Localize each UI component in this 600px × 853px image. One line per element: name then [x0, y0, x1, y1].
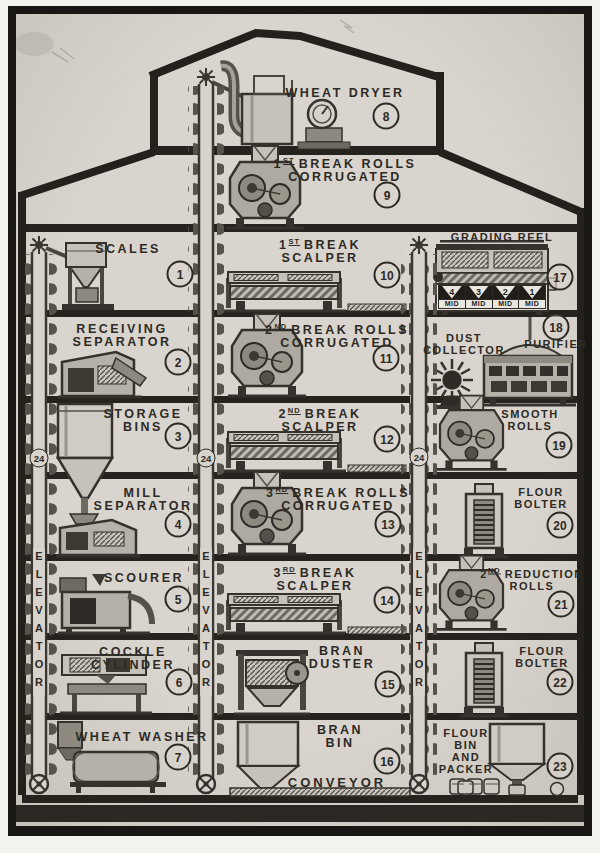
scales-badge: 1 — [167, 261, 194, 288]
scales-label: SCALES — [95, 243, 161, 256]
first-break-rolls-badge: 9 — [374, 182, 401, 209]
third-break-scalper-label: 3RDBREAK SCALPER — [273, 563, 356, 593]
label-overlay: SCALES 1 RECEIVINGSEPARATOR 2 STORAGEBIN… — [0, 0, 600, 853]
wheat-dryer-label: WHEAT DRYER — [285, 87, 404, 100]
elevator-label-left: ELEVATOR — [33, 548, 45, 696]
flour-bolter-upper-label: FLOURBOLTER — [514, 486, 567, 510]
flour-bolter-lower-label: FLOURBOLTER — [515, 645, 568, 669]
hopper-cell: 4MID — [439, 286, 466, 308]
second-break-scalper-label: 2NDBREAK SCALPER — [278, 404, 361, 434]
storage-bins-badge: 3 — [165, 423, 192, 450]
hopper-cell: 1MID — [519, 286, 545, 308]
mill-separator-badge: 4 — [165, 511, 192, 538]
bran-bin-label: BRANBIN — [317, 724, 363, 750]
scourer-label: SCOURER — [104, 572, 184, 585]
flour-bolter-upper-badge: 20 — [547, 512, 574, 539]
receiving-separator-badge: 2 — [165, 349, 192, 376]
flour-bolter-lower-badge: 22 — [547, 669, 574, 696]
bran-duster-badge: 15 — [375, 671, 402, 698]
mill-separator-label: MILLSEPARATOR — [94, 487, 193, 513]
third-break-scalper-badge: 14 — [374, 587, 401, 614]
cockle-cylinder-label: COCKLECYLINDER — [91, 646, 175, 672]
third-break-rolls-badge: 13 — [375, 511, 402, 538]
scourer-badge: 5 — [165, 586, 192, 613]
elevator-badge-left: 24 — [30, 449, 49, 468]
grading-reel-label: GRADING REEL — [451, 231, 553, 243]
flour-bin-packer-badge: 23 — [547, 753, 574, 780]
cockle-cylinder-badge: 6 — [166, 669, 193, 696]
grading-reel-hoppers: 4MID 3MID 2MID 1MID — [438, 285, 546, 309]
hopper-cell: 2MID — [493, 286, 520, 308]
mill-flow-diagram-page: SCALES 1 RECEIVINGSEPARATOR 2 STORAGEBIN… — [0, 0, 600, 853]
wheat-washer-label: WHEAT WASHER — [75, 731, 208, 744]
smooth-rolls-badge: 19 — [546, 432, 573, 459]
grading-reel-badge: 17 — [547, 264, 574, 291]
receiving-separator-label: RECEIVINGSEPARATOR — [73, 323, 172, 349]
bran-duster-label: BRANDUSTER — [309, 645, 375, 671]
reduction-rolls-label: 2NDREDUCTION ROLLS — [480, 565, 583, 592]
second-break-scalper-badge: 12 — [374, 426, 401, 453]
wheat-dryer-badge: 8 — [373, 103, 400, 130]
third-break-rolls-label: 3RDBREAK ROLLS CORRUGATED — [266, 483, 410, 513]
elevator-badge-center: 24 — [197, 449, 216, 468]
first-break-scalper-badge: 10 — [374, 262, 401, 289]
wheat-washer-badge: 7 — [165, 744, 192, 771]
conveyor-label: CONVEYOR — [288, 776, 386, 789]
first-break-scalper-label: 1STBREAK SCALPER — [279, 235, 361, 265]
second-break-rolls-badge: 11 — [373, 345, 400, 372]
hopper-cell: 3MID — [466, 286, 493, 308]
purifier-badge: 18 — [543, 314, 570, 341]
smooth-rolls-label: SMOOTHROLLS — [501, 408, 558, 432]
elevator-badge-right: 24 — [410, 448, 429, 467]
reduction-rolls-badge: 21 — [548, 591, 575, 618]
flour-bin-packer-label: FLOURBIN ANDPACKER — [439, 727, 494, 775]
elevator-label-center: ELEVATOR — [200, 548, 212, 696]
elevator-label-right: ELEVATOR — [413, 548, 425, 696]
purifier-label: PURIFIER — [524, 338, 587, 350]
first-break-rolls-label: 1STBREAK ROLLS CORRUGATED — [274, 154, 417, 184]
bran-bin-badge: 16 — [374, 748, 401, 775]
dust-collector-label: DUSTCOLLECTOR — [423, 332, 505, 356]
